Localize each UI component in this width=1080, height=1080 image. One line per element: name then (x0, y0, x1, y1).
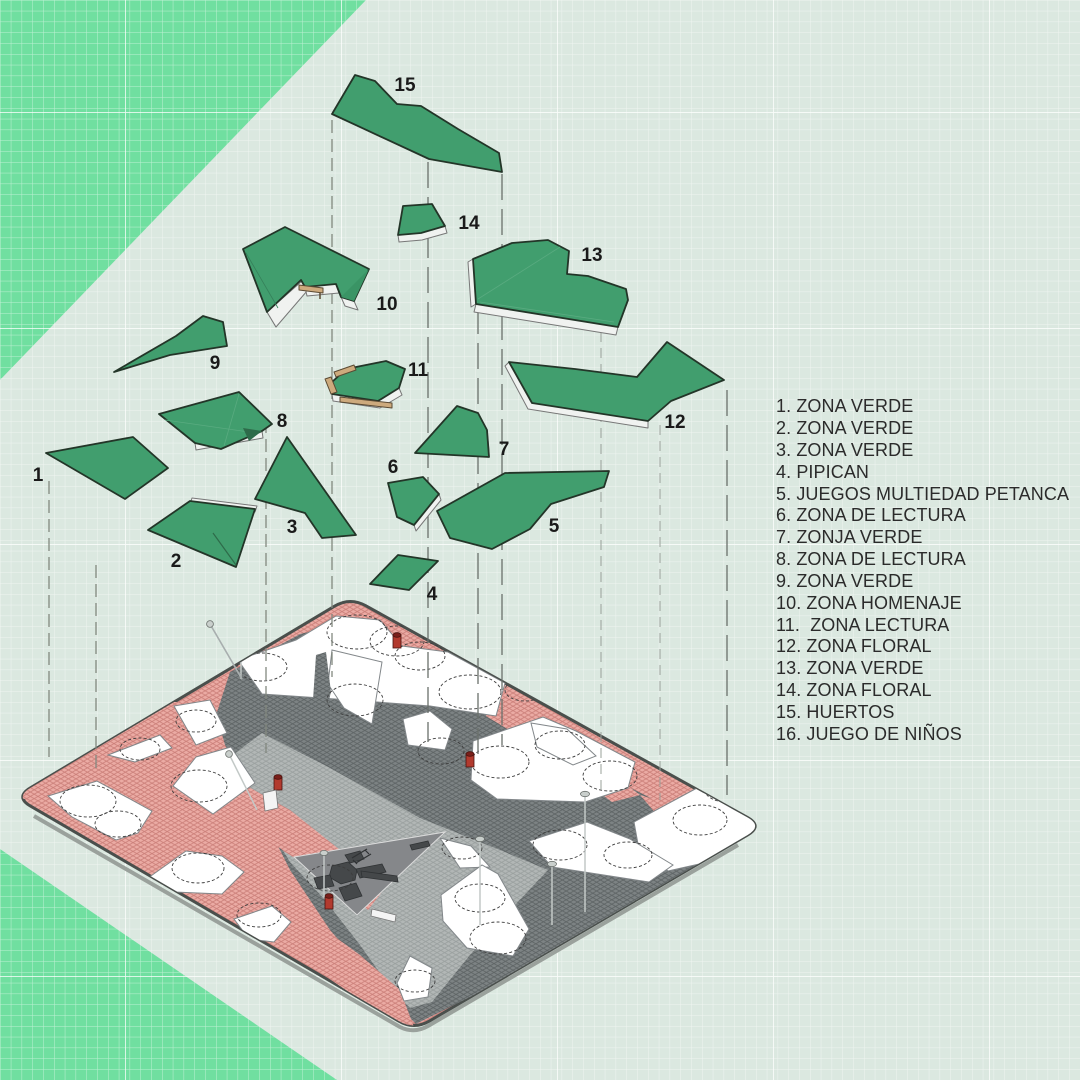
svg-text:2: 2 (171, 551, 182, 572)
svg-text:15: 15 (394, 75, 416, 96)
svg-text:15. HUERTOS: 15. HUERTOS (776, 702, 894, 722)
svg-text:3. ZONA VERDE: 3. ZONA VERDE (776, 440, 913, 460)
svg-text:4: 4 (427, 584, 438, 605)
svg-text:4. PIPICAN: 4. PIPICAN (776, 462, 869, 482)
svg-text:1. ZONA VERDE: 1. ZONA VERDE (776, 396, 913, 416)
svg-text:9. ZONA VERDE: 9. ZONA VERDE (776, 571, 913, 591)
svg-text:6: 6 (388, 457, 399, 478)
svg-text:6. ZONA DE LECTURA: 6. ZONA DE LECTURA (776, 505, 966, 525)
svg-text:11. ZONA LECTURA: 11. ZONA LECTURA (776, 615, 949, 635)
svg-text:8: 8 (277, 411, 288, 432)
svg-text:14: 14 (458, 213, 480, 234)
svg-text:13: 13 (581, 245, 602, 266)
svg-text:5. JUEGOS MULTIEDAD PETANCA: 5. JUEGOS MULTIEDAD PETANCA (776, 484, 1069, 504)
svg-text:13. ZONA VERDE: 13. ZONA VERDE (776, 658, 923, 678)
svg-text:9: 9 (210, 353, 221, 374)
svg-text:12. ZONA FLORAL: 12. ZONA FLORAL (776, 636, 932, 656)
svg-text:10: 10 (376, 294, 397, 315)
svg-text:7: 7 (499, 439, 510, 460)
svg-text:7. ZONJA VERDE: 7. ZONJA VERDE (776, 527, 922, 547)
svg-text:2. ZONA VERDE: 2. ZONA VERDE (776, 418, 913, 438)
svg-text:11: 11 (408, 360, 429, 381)
svg-text:3: 3 (287, 517, 298, 538)
svg-text:10. ZONA HOMENAJE: 10. ZONA HOMENAJE (776, 593, 962, 613)
svg-text:14. ZONA FLORAL: 14. ZONA FLORAL (776, 680, 932, 700)
svg-text:8. ZONA DE LECTURA: 8. ZONA DE LECTURA (776, 549, 966, 569)
svg-text:5: 5 (549, 516, 560, 537)
svg-text:12: 12 (664, 412, 685, 433)
svg-text:1: 1 (33, 465, 44, 486)
svg-text:16. JUEGO DE NIÑOS: 16. JUEGO DE NIÑOS (776, 723, 962, 744)
